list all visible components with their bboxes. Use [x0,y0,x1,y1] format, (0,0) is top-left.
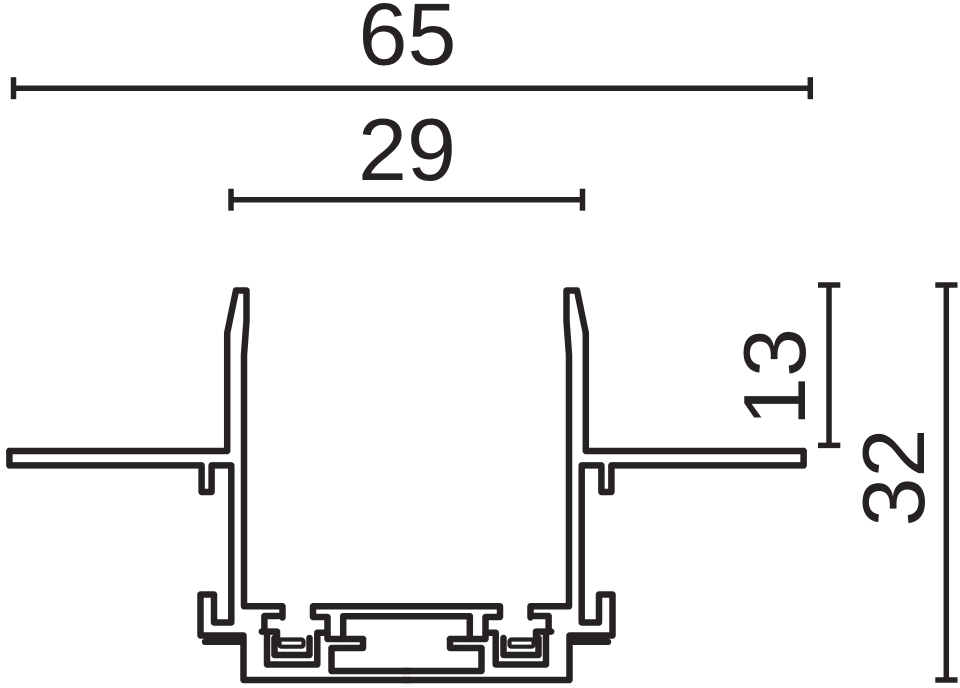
svg-text:65: 65 [359,0,457,84]
svg-text:32: 32 [844,429,943,527]
svg-text:13: 13 [725,328,824,426]
svg-text:29: 29 [358,100,456,199]
